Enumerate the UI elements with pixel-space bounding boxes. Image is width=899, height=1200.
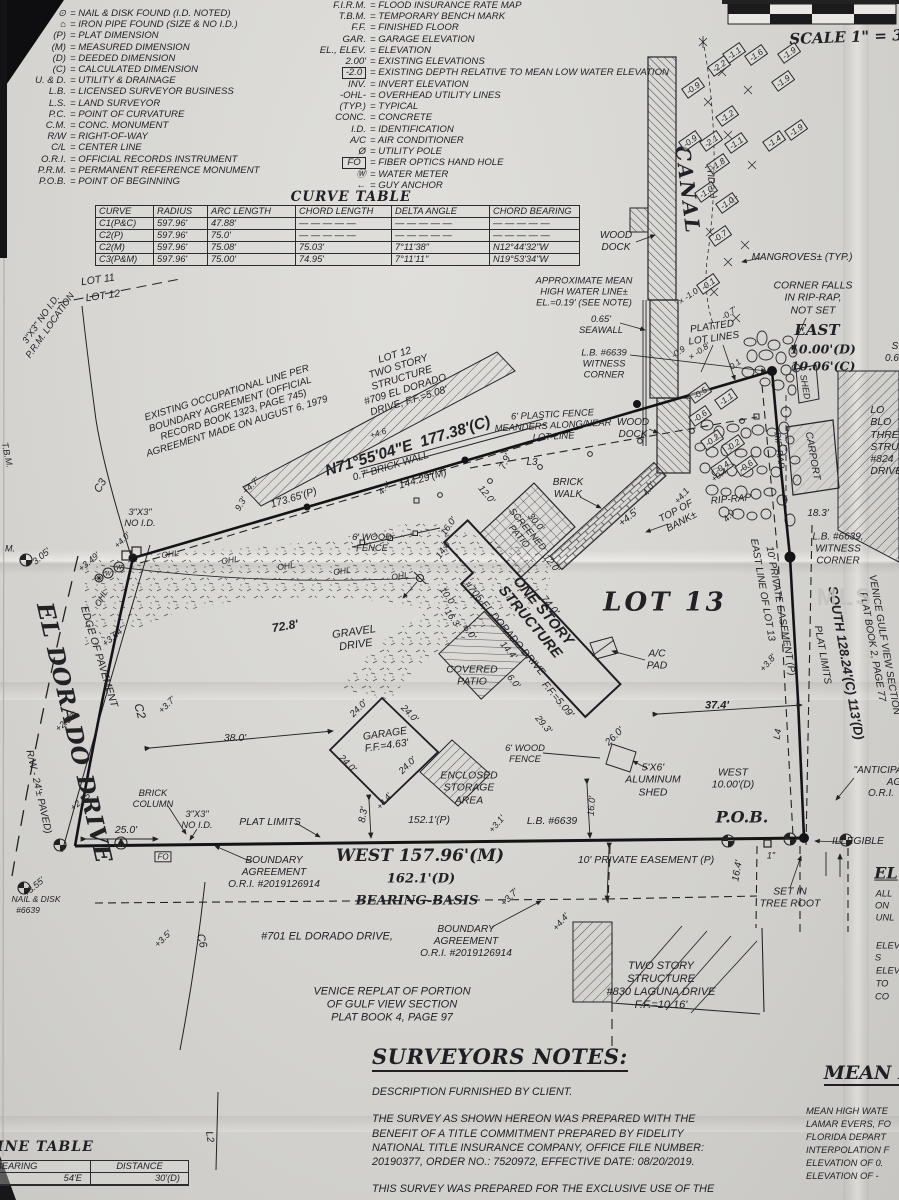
legend-symbol: (M) <box>16 42 66 53</box>
table-header: CHORD LENGTH <box>296 206 392 218</box>
legend-symbol: ⌂ <box>16 19 66 30</box>
legend-symbol: U. & D. <box>16 75 66 86</box>
found-monument-icon <box>115 837 127 849</box>
table-cell: 75.0' <box>208 230 296 242</box>
legend-text: = FIBER OPTICS HAND HOLE <box>370 157 504 169</box>
legend-item: I.D. = IDENTIFICATION <box>312 124 669 135</box>
legend-text: = FINISHED FLOOR <box>370 22 459 33</box>
surveyors-notes-title: SURVEYORS NOTES: <box>372 1044 628 1072</box>
table-cell: — — — — — <box>296 218 392 230</box>
legend-text: = IDENTIFICATION <box>370 124 454 135</box>
legend-symbol: F.F. <box>312 22 366 33</box>
legend-item: U. & D. = UTILITY & DRAINAGE <box>16 75 260 86</box>
legend-abbreviations-right: F.I.R.M. = FLOOD INSURANCE RATE MAPT.B.M… <box>312 0 669 191</box>
note-paragraph: DESCRIPTION FURNISHED BY CLIENT. <box>372 1085 772 1099</box>
legend-text: = EXISTING ELEVATIONS <box>370 56 485 67</box>
legend-text: = OVERHEAD UTILITY LINES <box>370 90 501 101</box>
legend-item: -2.0 = EXISTING DEPTH RELATIVE TO MEAN L… <box>312 67 669 79</box>
table-cell: — — — — — <box>490 230 580 242</box>
mhw-line: INTERPOLATION F <box>806 1143 899 1156</box>
legend-symbol: C.M. <box>16 120 66 131</box>
legend-item: A/C = AIR CONDITIONER <box>312 135 669 146</box>
legend-item: EL., ELEV. = ELEVATION <box>312 45 669 56</box>
legend-symbol: T.B.M. <box>312 11 366 22</box>
line-table: BEARINGDISTANCE54'E30'(D) <box>0 1160 189 1186</box>
legend-item: 2.00' = EXISTING ELEVATIONS <box>312 56 669 67</box>
legend-item: (C) = CALCULATED DIMENSION <box>16 64 260 75</box>
legend-item: R/W = RIGHT-OF-WAY <box>16 131 260 142</box>
legend-item: (P) = PLAT DIMENSION <box>16 30 260 41</box>
table-row: C2(M)597.96'75.08'75.03'7°11'38"N12°44'3… <box>96 242 580 254</box>
legend-text: = UTILITY POLE <box>370 146 442 157</box>
note-paragraph: THIS SURVEY WAS PREPARED FOR THE EXCLUSI… <box>372 1182 772 1196</box>
table-header: DISTANCE <box>91 1161 189 1173</box>
table-cell: 75.00' <box>208 254 296 266</box>
table-cell: 74.95' <box>296 254 392 266</box>
legend-symbol: (D) <box>16 53 66 64</box>
legend-text: = RIGHT-OF-WAY <box>70 131 148 142</box>
table-header: CURVE <box>96 206 154 218</box>
legend-text: = CONC. MONUMENT <box>70 120 168 131</box>
lot12-structure <box>243 352 546 506</box>
legend-symbol: P.C. <box>16 109 66 120</box>
legend-item: CONC. = CONCRETE <box>312 112 669 123</box>
table-cell: N19°53'34"W <box>490 254 580 266</box>
legend-text: = TEMPORARY BENCH MARK <box>370 11 505 22</box>
mangroves-marks <box>699 36 756 332</box>
mhw-line: ELEVATION OF - <box>806 1169 899 1182</box>
legend-text: = POINT OF BEGINNING <box>70 176 180 187</box>
legend-symbol: P.O.B. <box>16 176 66 187</box>
legend-symbol: -2.0 <box>342 67 366 79</box>
legend-symbol: O.R.I. <box>16 154 66 165</box>
legend-text: = GARAGE ELEVATION <box>370 34 475 45</box>
legend-item: C.M. = CONC. MONUMENT <box>16 120 260 131</box>
legend-item: (TYP.) = TYPICAL <box>312 101 669 112</box>
garage-outline <box>330 698 438 804</box>
legend-symbol: ⊙ <box>16 8 66 19</box>
table-cell <box>91 1185 189 1186</box>
table-cell: C2(P) <box>96 230 154 242</box>
survey-document: W <box>0 0 899 1200</box>
legend-symbol: (TYP.) <box>312 101 366 112</box>
legend-item: (D) = DEEDED DIMENSION <box>16 53 260 64</box>
legend-item: INV. = INVERT ELEVATION <box>312 79 669 90</box>
legend-text: = PLAT DIMENSION <box>70 30 159 41</box>
structure-830 <box>573 922 764 1014</box>
legend-text: = LICENSED SURVEYOR BUSINESS <box>70 86 234 97</box>
table-cell: C1(P&C) <box>96 218 154 230</box>
table-header: RADIUS <box>154 206 208 218</box>
table-row: C2(P)597.96'75.0'— — — — —— — — — —— — —… <box>96 230 580 242</box>
legend-item: -OHL- = OVERHEAD UTILITY LINES <box>312 90 669 101</box>
table-cell: 597.96' <box>154 242 208 254</box>
legend-text: = CALCULATED DIMENSION <box>70 64 198 75</box>
legend-item: C/L = CENTER LINE <box>16 142 260 153</box>
brick-walk <box>550 462 666 569</box>
scale-bar <box>722 0 899 24</box>
legend-item: (M) = MEASURED DIMENSION <box>16 42 260 53</box>
line-table-title: LINE TABLE <box>0 1139 120 1155</box>
dimension-lines <box>86 705 840 901</box>
legend-symbol: I.D. <box>312 124 366 135</box>
table-cell: C3(P&M) <box>96 254 154 266</box>
legend-text: = LAND SURVEYOR <box>70 98 160 109</box>
table-cell: 47.88' <box>208 218 296 230</box>
enclosed-storage <box>420 740 490 806</box>
legend-item: ⌂ = IRON PIPE FOUND (SIZE & NO I.D.) <box>16 19 260 30</box>
table-cell: 75.03' <box>296 242 392 254</box>
table-cell: 30'(D) <box>91 1173 189 1185</box>
legend-text: = CENTER LINE <box>70 142 142 153</box>
legend-text: = FLOOD INSURANCE RATE MAP <box>370 0 521 11</box>
curve-table: CURVERADIUSARC LENGTHCHORD LENGTHDELTA A… <box>95 205 580 266</box>
table-row <box>0 1185 189 1186</box>
mean-high-water-block: MEAN HI MEAN HIGH WATELAMAR EVERS, FOFLO… <box>806 1044 899 1200</box>
legend-symbol: CONC. <box>312 112 366 123</box>
table-header: DELTA ANGLE <box>392 206 490 218</box>
rip-rap-stones <box>695 331 801 526</box>
legend-text: = CONCRETE <box>370 112 432 123</box>
table-cell <box>0 1185 91 1186</box>
legend-text: = DEEDED DIMENSION <box>70 53 175 64</box>
neighbor-structures <box>786 365 899 562</box>
legend-symbol: EL., ELEV. <box>312 45 366 56</box>
legend-abbreviations-left: ⊙ = NAIL & DISK FOUND (I.D. NOTED)⌂ = IR… <box>16 8 260 187</box>
mean-high-water-title: MEAN HI <box>824 1062 899 1086</box>
legend-symbol: INV. <box>312 79 366 90</box>
table-row: C3(P&M)597.96'75.00'74.95'7°11'11"N19°53… <box>96 254 580 266</box>
legend-text: = OFFICIAL RECORDS INSTRUMENT <box>70 154 237 165</box>
legend-text: = UTILITY & DRAINAGE <box>70 75 176 86</box>
legend-symbol: Ø <box>312 146 366 157</box>
legend-symbol: P.R.M. <box>16 165 66 176</box>
legend-text: = INVERT ELEVATION <box>370 79 469 90</box>
legend-text: = EXISTING DEPTH RELATIVE TO MEAN LOW WA… <box>370 67 669 79</box>
table-cell: 54'E <box>0 1173 91 1185</box>
legend-symbol: A/C <box>312 135 366 146</box>
table-cell: 597.96' <box>154 218 208 230</box>
legend-symbol: GAR. <box>312 34 366 45</box>
legend-symbol: 2.00' <box>312 56 366 67</box>
legend-text: = TYPICAL <box>370 101 418 112</box>
table-cell: — — — — — <box>392 218 490 230</box>
legend-item: O.R.I. = OFFICIAL RECORDS INSTRUMENT <box>16 154 260 165</box>
legend-item: L.B. = LICENSED SURVEYOR BUSINESS <box>16 86 260 97</box>
legend-symbol: (P) <box>16 30 66 41</box>
legend-text: = NAIL & DISK FOUND (I.D. NOTED) <box>70 8 231 19</box>
legend-item: ⊙ = NAIL & DISK FOUND (I.D. NOTED) <box>16 8 260 19</box>
dashed-lines <box>95 385 848 1046</box>
legend-item: P.R.M. = PERMANENT REFERENCE MONUMENT <box>16 165 260 176</box>
table-cell: — — — — — <box>296 230 392 242</box>
mhw-line: MEAN HIGH WATE <box>806 1104 899 1117</box>
table-cell: 7°11'38" <box>392 242 490 254</box>
legend-item: T.B.M. = TEMPORARY BENCH MARK <box>312 11 669 22</box>
legend-symbol: Ⓦ <box>312 169 366 180</box>
table-header: CHORD BEARING <box>490 206 580 218</box>
table-cell: 75.08' <box>208 242 296 254</box>
table-cell: 597.96' <box>154 254 208 266</box>
mhw-line: FLORIDA DEPART <box>806 1130 899 1143</box>
legend-item: GAR. = GARAGE ELEVATION <box>312 34 669 45</box>
legend-text: = MEASURED DIMENSION <box>70 42 190 53</box>
legend-item: F.F. = FINISHED FLOOR <box>312 22 669 33</box>
legend-symbol: F.I.R.M. <box>312 0 366 11</box>
legend-symbol: -OHL- <box>312 90 366 101</box>
legend-symbol: C/L <box>16 142 66 153</box>
table-cell: 7°11'11" <box>392 254 490 266</box>
surveyors-notes: SURVEYORS NOTES: DESCRIPTION FURNISHED B… <box>372 1044 772 1197</box>
mhw-line: LAMAR EVERS, FO <box>806 1117 899 1130</box>
table-cell: — — — — — <box>392 230 490 242</box>
curve-table-title: CURVE TABLE <box>261 189 441 205</box>
note-paragraph: THE SURVEY AS SHOWN HEREON WAS PREPARED … <box>372 1112 772 1169</box>
legend-symbol: FO <box>342 157 366 169</box>
legend-text: = PERMANENT REFERENCE MONUMENT <box>70 165 260 176</box>
table-row: C1(P&C)597.96'47.88'— — — — —— — — — —— … <box>96 218 580 230</box>
legend-symbol: L.S. <box>16 98 66 109</box>
legend-item: Ø = UTILITY POLE <box>312 146 669 157</box>
legend-symbol: L.B. <box>16 86 66 97</box>
legend-symbol: (C) <box>16 64 66 75</box>
legend-item: L.S. = LAND SURVEYOR <box>16 98 260 109</box>
table-header: BEARING <box>0 1161 91 1173</box>
legend-text: = POINT OF CURVATURE <box>70 109 184 120</box>
legend-item: P.C. = POINT OF CURVATURE <box>16 109 260 120</box>
legend-text: = WATER METER <box>370 169 448 180</box>
aluminum-shed <box>606 744 636 772</box>
legend-item: FO = FIBER OPTICS HAND HOLE <box>312 157 669 169</box>
table-row: 54'E30'(D) <box>0 1173 189 1185</box>
legend-item: P.O.B. = POINT OF BEGINNING <box>16 176 260 187</box>
legend-text: = ELEVATION <box>370 45 431 56</box>
table-cell: — — — — — <box>490 218 580 230</box>
legend-text: = AIR CONDITIONER <box>370 135 464 146</box>
table-cell: C2(M) <box>96 242 154 254</box>
table-header: ARC LENGTH <box>208 206 296 218</box>
table-cell: 597.96' <box>154 230 208 242</box>
legend-symbol: R/W <box>16 131 66 142</box>
legend-item: F.I.R.M. = FLOOD INSURANCE RATE MAP <box>312 0 669 11</box>
mhw-line: ELEVATION OF 0. <box>806 1156 899 1169</box>
legend-item: Ⓦ = WATER METER <box>312 169 669 180</box>
table-cell: N12°44'32"W <box>490 242 580 254</box>
legend-text: = IRON PIPE FOUND (SIZE & NO I.D.) <box>70 19 238 30</box>
